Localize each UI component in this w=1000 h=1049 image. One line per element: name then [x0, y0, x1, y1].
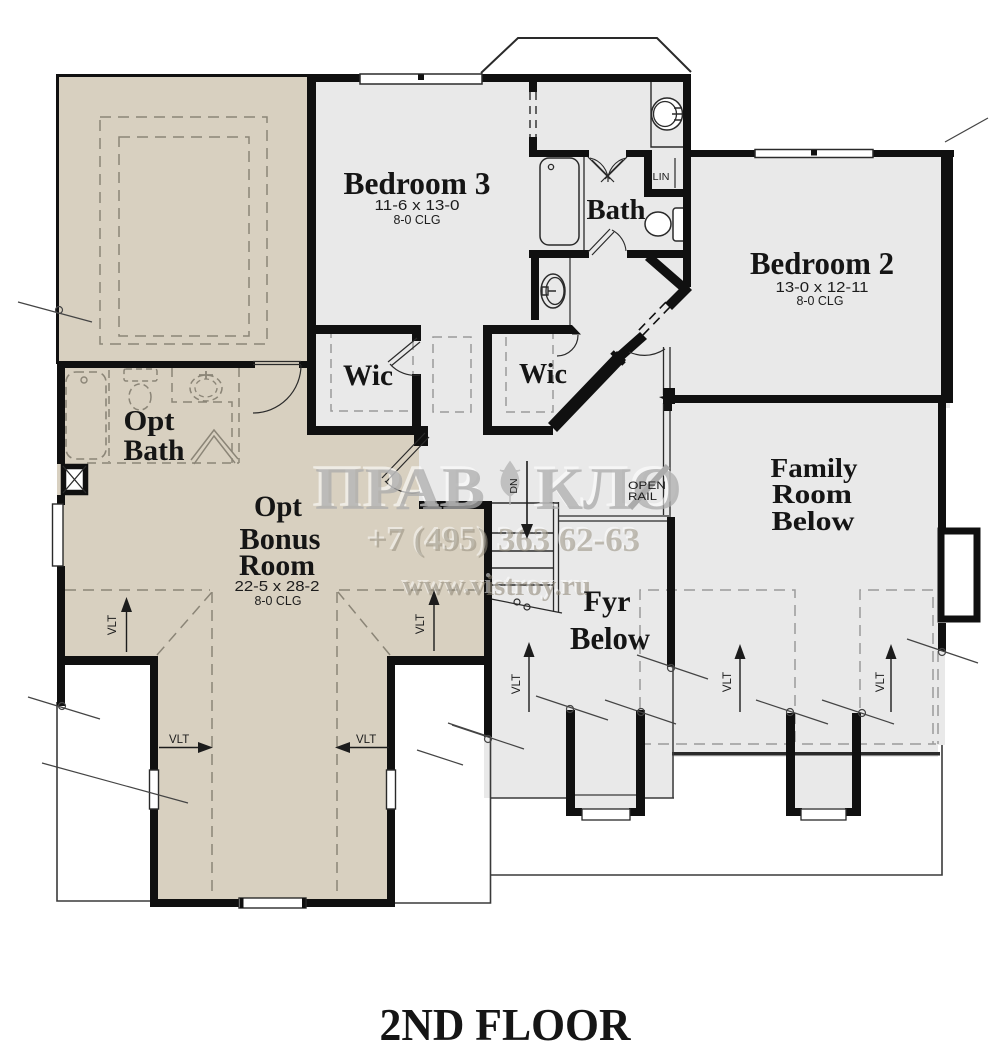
- svg-text:2ND FLOOR: 2ND FLOOR: [380, 999, 632, 1049]
- svg-text:LIN: LIN: [653, 171, 670, 183]
- svg-text:Room: Room: [772, 479, 853, 509]
- svg-text:Bath: Bath: [587, 195, 646, 226]
- svg-text:RAIL: RAIL: [628, 491, 657, 503]
- svg-text:Bedroom 2: Bedroom 2: [750, 245, 894, 281]
- svg-text:8-0 CLG: 8-0 CLG: [797, 293, 844, 308]
- svg-text:VLT: VLT: [875, 672, 887, 692]
- svg-text:VLT: VLT: [415, 614, 427, 634]
- svg-text:Below: Below: [570, 620, 650, 656]
- svg-text:+7 (495) 363 62-63: +7 (495) 363 62-63: [368, 522, 640, 559]
- svg-text:VLT: VLT: [169, 734, 189, 746]
- svg-text:Wic: Wic: [519, 359, 567, 390]
- svg-text:VLT: VLT: [722, 672, 734, 692]
- svg-text:VLT: VLT: [107, 615, 119, 635]
- svg-text:Bath: Bath: [124, 434, 185, 467]
- svg-text:Wic: Wic: [343, 359, 393, 392]
- svg-text:www.vistroy.ru: www.vistroy.ru: [403, 571, 591, 602]
- svg-text:8-0 CLG: 8-0 CLG: [255, 593, 302, 608]
- svg-text:VLT: VLT: [511, 674, 523, 694]
- svg-text:8-0 CLG: 8-0 CLG: [394, 212, 441, 227]
- svg-text:VLT: VLT: [356, 734, 376, 746]
- svg-text:Opt: Opt: [124, 406, 176, 437]
- svg-text:Bedroom 3: Bedroom 3: [344, 165, 491, 201]
- svg-text:Fyr: Fyr: [584, 585, 631, 618]
- svg-text:Opt: Opt: [254, 490, 302, 523]
- svg-text:DN: DN: [508, 478, 520, 493]
- svg-text:ПРАВ: ПРАВ: [315, 456, 485, 522]
- svg-text:Below: Below: [772, 506, 856, 536]
